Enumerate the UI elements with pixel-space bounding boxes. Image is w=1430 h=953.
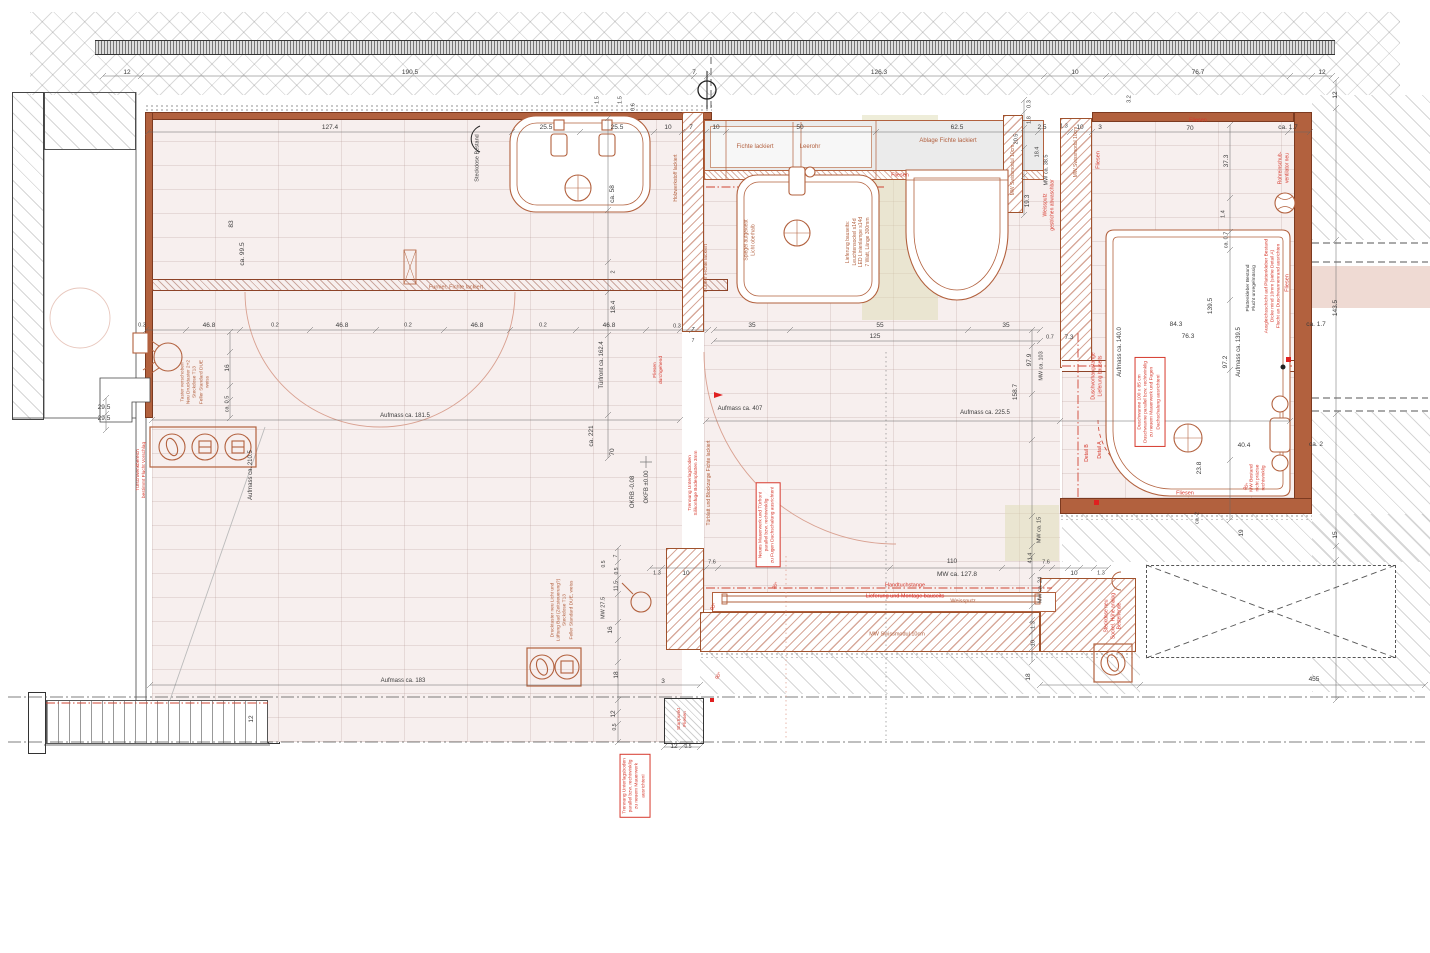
- annotation-label: ca. 2: [1194, 512, 1201, 524]
- annotation-label: 19: [1238, 529, 1246, 536]
- annotation-label: 37.3: [1223, 155, 1231, 168]
- annotation-label: 7: [689, 124, 693, 132]
- annotation-label: 70: [609, 448, 617, 455]
- annotation-label: 62.5: [951, 124, 964, 132]
- annotation-label: 90°: [1242, 482, 1251, 492]
- annotation-label: 83: [228, 220, 236, 227]
- annotation-label: Ausgleichsschicht auf Plattenkleber Best…: [1265, 239, 1284, 333]
- annotation-label: Startpunkt Fliesen: [677, 708, 689, 730]
- annotation-label: 46.8: [603, 322, 616, 330]
- annotation-label: 127.4: [322, 124, 338, 132]
- annotation-label: 18.4: [1034, 147, 1041, 158]
- annotation-label: 2: [610, 270, 617, 273]
- annotation-label: Fliesen: [1284, 274, 1291, 292]
- annotation-label: 19.3: [1024, 195, 1032, 208]
- annotation-label: 10: [1030, 640, 1037, 646]
- annotation-label: Taster verschoben Neu Drucktaster 2+2 St…: [180, 360, 211, 404]
- annotation-label: Aufmass ca. 210.5: [248, 450, 256, 500]
- annotation-label: Türschwenkbereich bestimmt Flucht Vorsch…: [136, 442, 148, 498]
- annotation-label: Fliesen: [1189, 117, 1207, 124]
- annotation-label: 0.5: [685, 744, 692, 751]
- annotation-label: 0.3: [138, 322, 146, 329]
- annotation-label: 10: [1070, 570, 1077, 578]
- annotation-label: 50: [796, 124, 803, 132]
- annotation-label: Aufmass ca. 139.5: [1236, 327, 1244, 377]
- annotation-label: 12: [1318, 69, 1325, 77]
- annotation-label: ca. 1.7: [1306, 321, 1326, 329]
- annotation-label: Spiegel aufgeklebt Licht oberhalb: [744, 219, 757, 260]
- annotation-label: 16: [607, 626, 615, 633]
- annotation-label: Aufmass ca. 140.0: [1117, 327, 1125, 377]
- annotation-label: 12: [248, 715, 256, 722]
- annotation-label: 20.5: [1013, 134, 1020, 145]
- annotation-label: Rohreinschub- ventilator neu: [1278, 152, 1291, 185]
- annotation-label: Aufmass ca. 183: [381, 678, 426, 686]
- annotation-label: 3: [1098, 124, 1102, 132]
- annotation-label: Fliesen: [1176, 490, 1194, 497]
- annotation-label: 18: [1025, 673, 1033, 680]
- annotation-label: 0.2: [404, 322, 412, 329]
- annotation-label: 70: [1186, 125, 1193, 133]
- annotation-label: 18: [613, 671, 621, 678]
- annotation-label: Lieferung bauseits: Leuchtensockel s14d …: [845, 217, 871, 267]
- annotation-label: Plattenkleber Bestand Flucht unregelmäss…: [1246, 265, 1258, 312]
- annotation-label: 125: [870, 333, 881, 341]
- annotation-label: 7: [613, 555, 620, 558]
- annotation-label: 0.3: [1026, 100, 1033, 108]
- annotation-label: 12: [670, 743, 677, 751]
- annotation-label: 139.5: [1207, 298, 1215, 314]
- annotation-label: ca. 0.7: [1223, 232, 1230, 249]
- annotation-label: Drucktaster neu Licht und Lüftung Bad (Z…: [551, 579, 576, 641]
- annotation-label: Steckdose Bestand: [474, 134, 481, 181]
- annotation-label: 84.3: [1170, 321, 1183, 329]
- annotation-label: 0.3: [673, 323, 681, 330]
- annotation-label: Aufmass ca. 407: [718, 406, 763, 414]
- annotation-label: Lieferung und Montage bauseits: [866, 593, 945, 600]
- annotation-label: Duschvorhangstange Lieferung bauseits: [1091, 352, 1104, 399]
- annotation-label: 3.2: [1126, 95, 1133, 103]
- annotation-label: 455: [1309, 676, 1320, 684]
- annotation-label: 10: [664, 124, 671, 132]
- annotation-label: 29.5: [98, 404, 111, 412]
- annotation-label: 10: [712, 124, 719, 132]
- annotation-label: MW ca. 127.8: [937, 571, 977, 579]
- annotation-label: 16: [224, 364, 232, 371]
- annotation-label: 25.5: [611, 124, 624, 132]
- annotation-label: ca. 58: [609, 185, 617, 203]
- annotation-label: MW ca. 24: [1037, 577, 1044, 603]
- annotation-label: 0.5: [614, 568, 621, 575]
- annotation-label: Leerohr: [800, 144, 821, 152]
- annotation-label: 55: [876, 322, 883, 330]
- annotation-label: 15: [1332, 531, 1340, 538]
- annotation-label: 46.8: [203, 322, 216, 330]
- annotation-label: 10: [1076, 124, 1083, 132]
- annotation-label: 90°: [771, 581, 780, 591]
- annotation-label: 76.3: [1182, 333, 1195, 341]
- annotation-label: 23.8: [1196, 462, 1204, 475]
- annotation-label: OKFB ±0.00: [644, 471, 652, 504]
- annotation-label: 0.6: [630, 103, 637, 111]
- annotation-label: 1.4: [1220, 210, 1227, 218]
- annotation-label: 7.6: [1042, 559, 1050, 566]
- annotation-label: 10: [1071, 69, 1078, 77]
- annotation-label: Duschwanne 100 x 85 cm Duschwanne parall…: [1135, 357, 1166, 447]
- annotation-label: Ablage Fichte lackiert: [919, 138, 976, 146]
- annotation-layer: 12190.57126.31076.71212127.425.525.51071…: [0, 0, 1430, 953]
- annotation-label: Weissputz gestrichen abwaschbar: [1043, 179, 1056, 230]
- annotation-label: Weissputz: [950, 598, 975, 605]
- annotation-label: 12: [610, 710, 618, 717]
- annotation-label: 0.7: [1046, 334, 1054, 341]
- annotation-label: MW Swissmodul 10cm: [1073, 127, 1080, 178]
- annotation-label: 12: [123, 69, 130, 77]
- annotation-label: ca. 2: [1309, 441, 1323, 449]
- annotation-label: Fliesen: [1095, 151, 1102, 169]
- annotation-label: MW Swissmodul 10cm: [869, 631, 925, 638]
- annotation-label: ca. 221: [588, 425, 596, 446]
- annotation-label: 11.5: [613, 581, 620, 591]
- annotation-label: ca. 0.5: [224, 396, 231, 413]
- annotation-label: 158.7: [1012, 384, 1020, 400]
- annotation-label: 7: [692, 338, 695, 345]
- annotation-label: Fliesen: [891, 172, 909, 179]
- annotation-label: 18.4: [610, 301, 618, 314]
- annotation-label: MW ca. 15: [1036, 517, 1043, 543]
- annotation-label: 2.5: [1037, 124, 1046, 132]
- annotation-label: Aufmass ca. 225.5: [960, 410, 1010, 418]
- annotation-label: 97.9: [1026, 354, 1034, 367]
- annotation-label: 35: [1002, 322, 1009, 330]
- floor-plan-canvas: 12190.57126.31076.71212127.425.525.51071…: [0, 0, 1430, 953]
- annotation-label: MW ca. 103: [1038, 351, 1045, 380]
- annotation-label: 0.2: [539, 322, 547, 329]
- annotation-label: Fichte lackiert: [736, 144, 773, 152]
- annotation-label: ca. 99.5: [239, 242, 247, 265]
- annotation-label: 35: [748, 322, 755, 330]
- annotation-label: Furnier, Fichte lackiert: [429, 284, 483, 291]
- annotation-label: 0.2: [271, 322, 279, 329]
- annotation-label: Furnier Fichte lackiert: [703, 244, 710, 292]
- annotation-label: 1.5: [617, 96, 624, 104]
- annotation-label: 1.3: [1060, 123, 1068, 130]
- annotation-label: 1.5: [594, 96, 601, 104]
- annotation-label: Fliesen durchgehend: [653, 356, 665, 384]
- annotation-label: 0.5: [601, 561, 608, 568]
- annotation-label: ca. 1.7: [1278, 124, 1298, 132]
- annotation-label: Türfront ca. 162.4: [599, 341, 607, 388]
- annotation-label: 190.5: [402, 69, 418, 77]
- annotation-label: OKRB -0.08: [630, 476, 638, 508]
- annotation-label: 7: [692, 327, 695, 334]
- annotation-label: 76.7: [1192, 69, 1205, 77]
- annotation-label: 10: [682, 570, 689, 578]
- annotation-label: 7.6: [708, 559, 716, 566]
- annotation-label: Aufmass ca. 181.5: [380, 413, 430, 421]
- annotation-label: MW Bestand nicht präzise rechtwinklig: [1250, 464, 1269, 491]
- annotation-label: 126.3: [871, 69, 887, 77]
- annotation-label: 0.5: [612, 724, 619, 731]
- annotation-label: 29.5: [98, 415, 111, 423]
- annotation-label: 46.8: [336, 322, 349, 330]
- annotation-label: 46.8: [471, 322, 484, 330]
- annotation-label: 110: [947, 558, 957, 566]
- annotation-label: 40.4: [1238, 442, 1251, 450]
- annotation-label: Türblatt und Blockzarge Fichte lackiert: [706, 440, 713, 525]
- annotation-label: 1.3: [1030, 621, 1037, 629]
- annotation-label: 41.4: [1027, 553, 1034, 564]
- annotation-label: 90°: [709, 602, 718, 612]
- annotation-label: 143.5: [1332, 300, 1340, 316]
- annotation-label: 1.8: [1026, 116, 1033, 124]
- annotation-label: 7.3: [1064, 334, 1073, 342]
- annotation-label: Holzwerkstoff lackiert: [673, 154, 680, 201]
- annotation-label: 90°: [714, 671, 723, 681]
- annotation-label: MW 27.5: [600, 597, 607, 619]
- annotation-label: MW ca. 38.5: [1043, 155, 1050, 186]
- annotation-label: 7: [692, 69, 696, 77]
- annotation-label: 1.3: [653, 570, 661, 577]
- annotation-label: Handtuchstange: [885, 582, 925, 589]
- annotation-label: Detail B: [1084, 444, 1091, 462]
- annotation-label: 1.3: [1097, 570, 1105, 577]
- annotation-label: Neues Mauerwerk und Türfront parallel bz…: [756, 483, 781, 568]
- annotation-label: MW Swissmodul 10cm: [1010, 145, 1017, 196]
- annotation-label: Trennung Unterlagsboden Silikonfuge Bode…: [688, 450, 700, 515]
- annotation-label: Detail A: [1097, 441, 1104, 458]
- annotation-label: 25.5: [540, 124, 553, 132]
- annotation-label: 97.2: [1222, 356, 1230, 369]
- annotation-label: Steckdose neu Sockel, Höhe analog Besteh…: [1103, 593, 1123, 639]
- annotation-label: Trennung Unterlagsboden parallel bzw. re…: [620, 754, 651, 818]
- annotation-label: 12: [1332, 91, 1340, 98]
- annotation-label: 3: [661, 678, 665, 686]
